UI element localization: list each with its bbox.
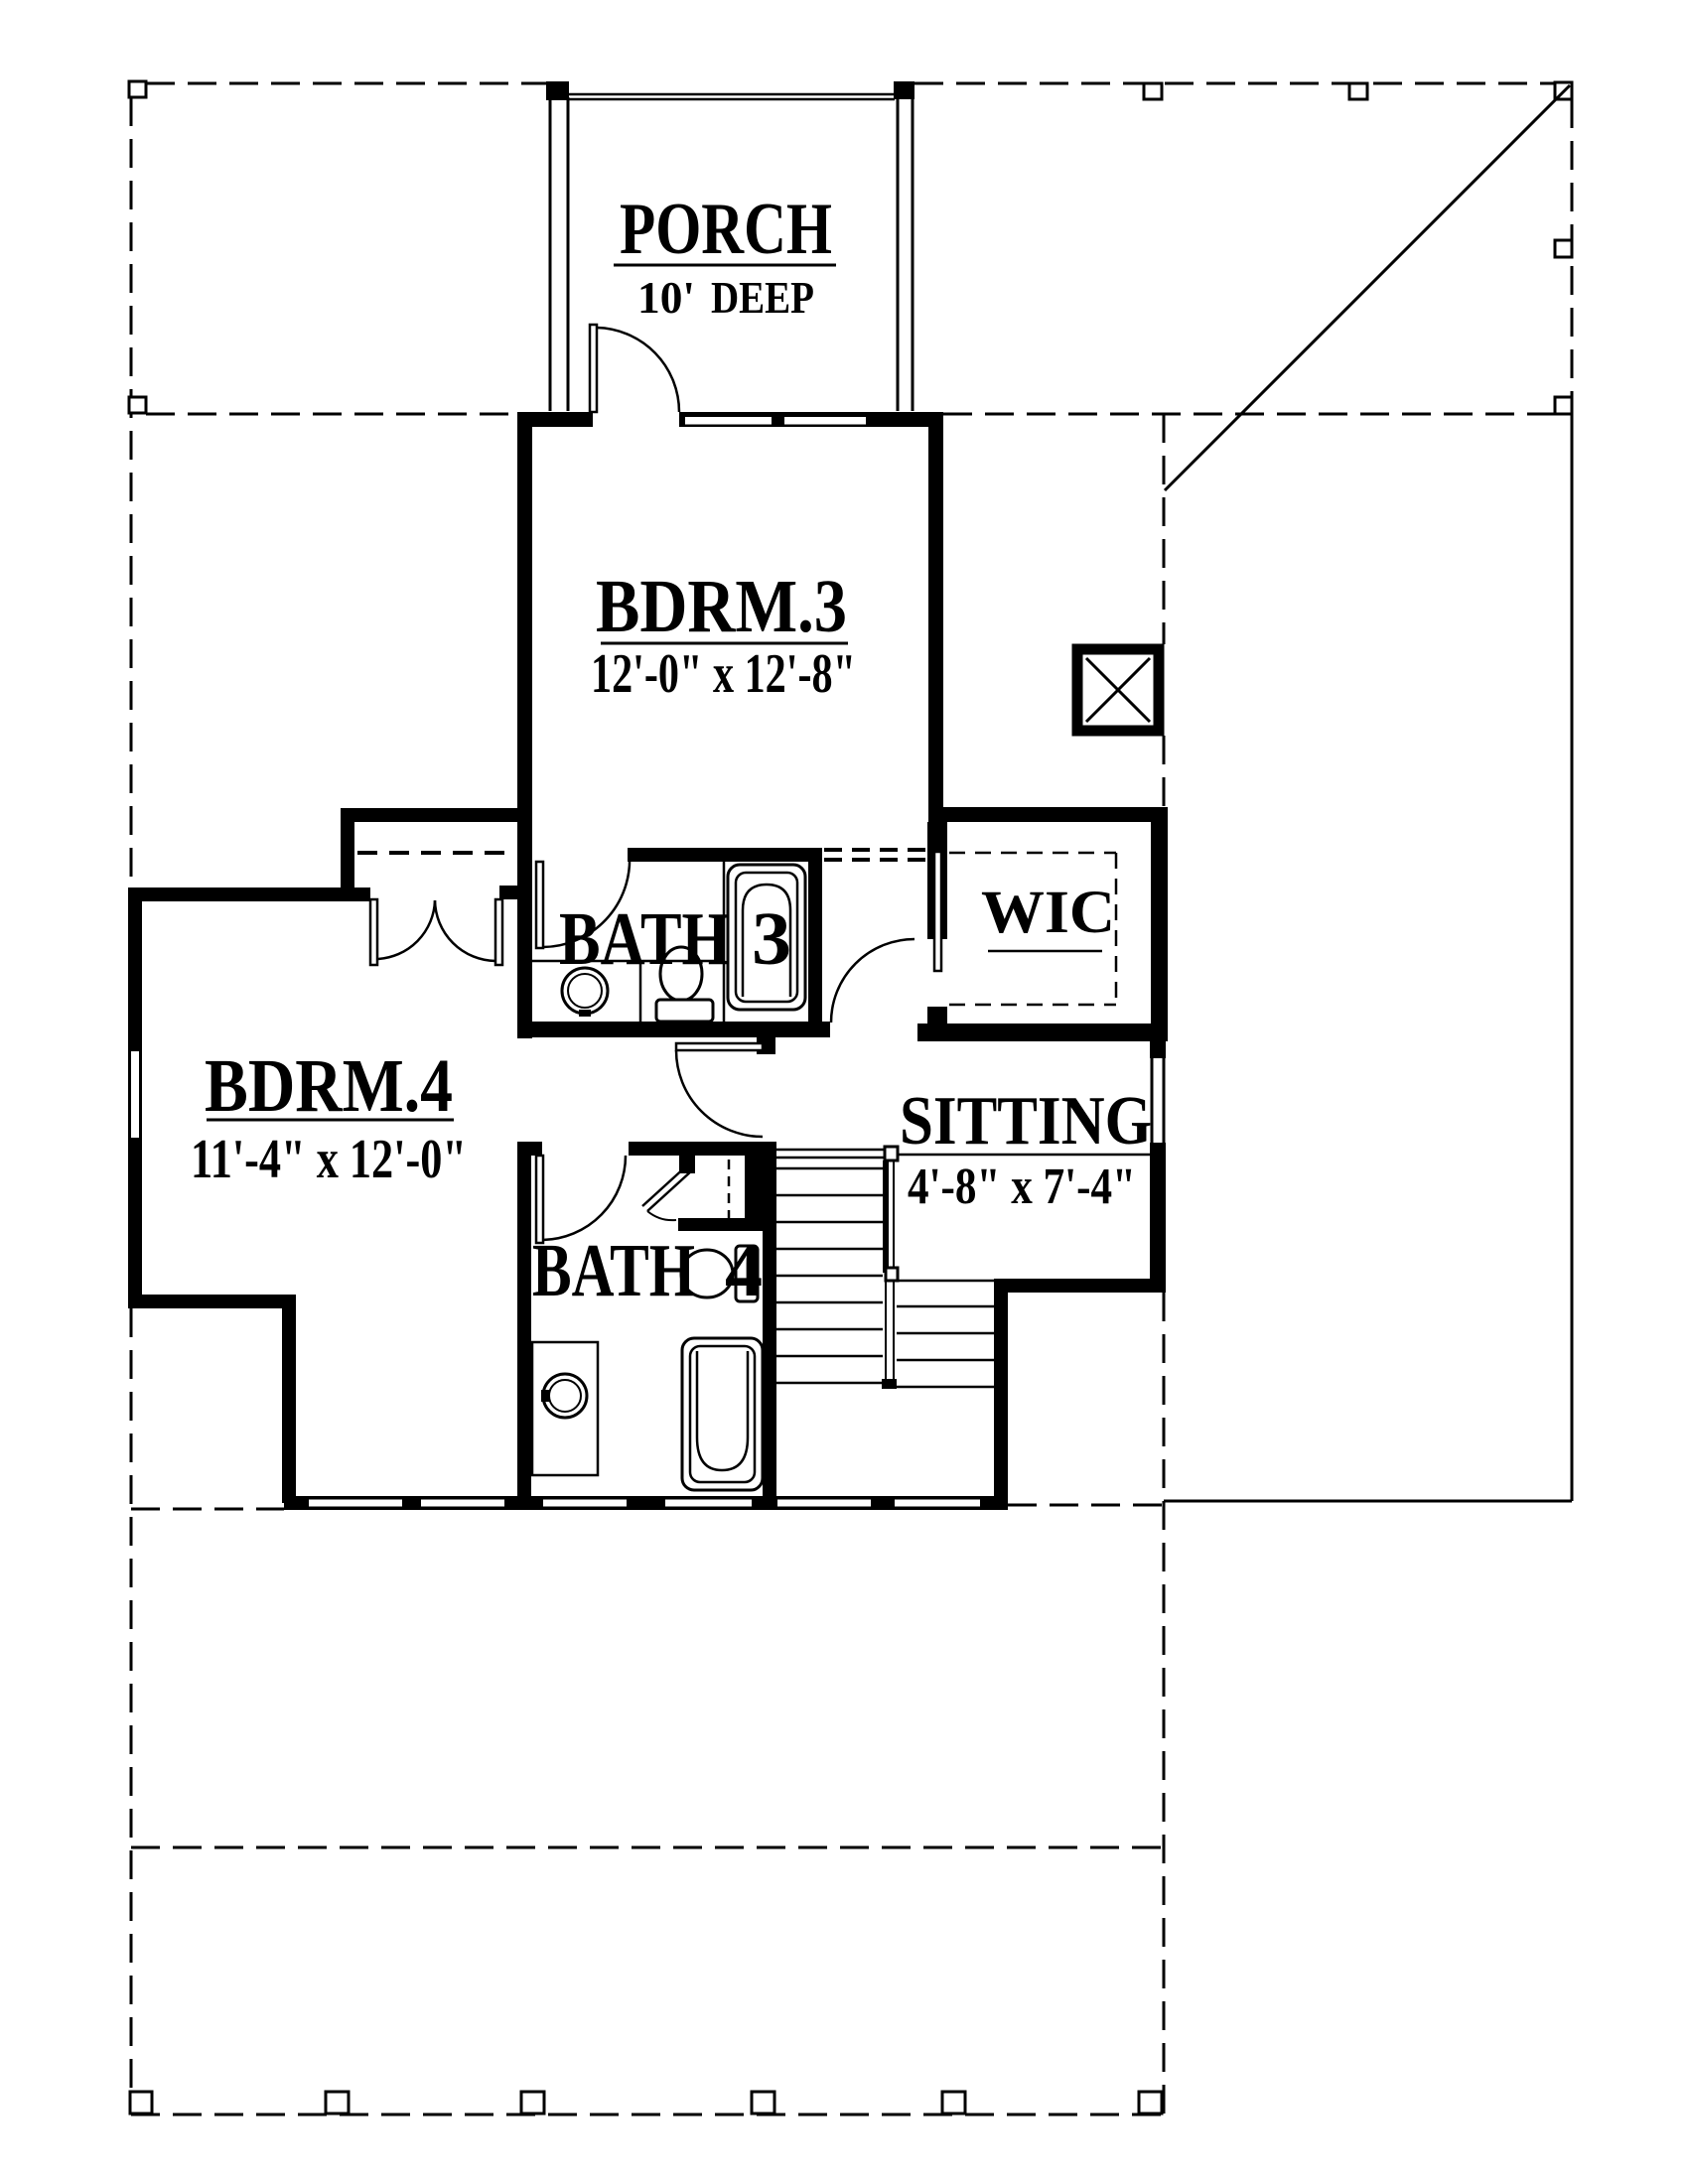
svg-text:4'-8" x 7'-4": 4'-8" x 7'-4" <box>908 1159 1136 1215</box>
svg-text:11'-4" x 12'-0": 11'-4" x 12'-0" <box>191 1129 467 1190</box>
svg-text:BATH: BATH <box>532 1229 695 1312</box>
svg-text:BDRM.4: BDRM.4 <box>205 1044 453 1128</box>
svg-text:BATH: BATH <box>559 897 730 981</box>
svg-text:3: 3 <box>752 897 791 981</box>
svg-text:SITTING: SITTING <box>900 1083 1152 1160</box>
svg-text:BDRM.3: BDRM.3 <box>596 565 847 648</box>
svg-text:PORCH: PORCH <box>620 189 832 270</box>
svg-text:DEEP: DEEP <box>711 272 814 323</box>
svg-text:10': 10' <box>637 272 695 323</box>
svg-text:4: 4 <box>725 1229 763 1312</box>
svg-text:12'-0" x 12'-8": 12'-0" x 12'-8" <box>591 643 856 705</box>
svg-text:WIC: WIC <box>981 880 1115 946</box>
